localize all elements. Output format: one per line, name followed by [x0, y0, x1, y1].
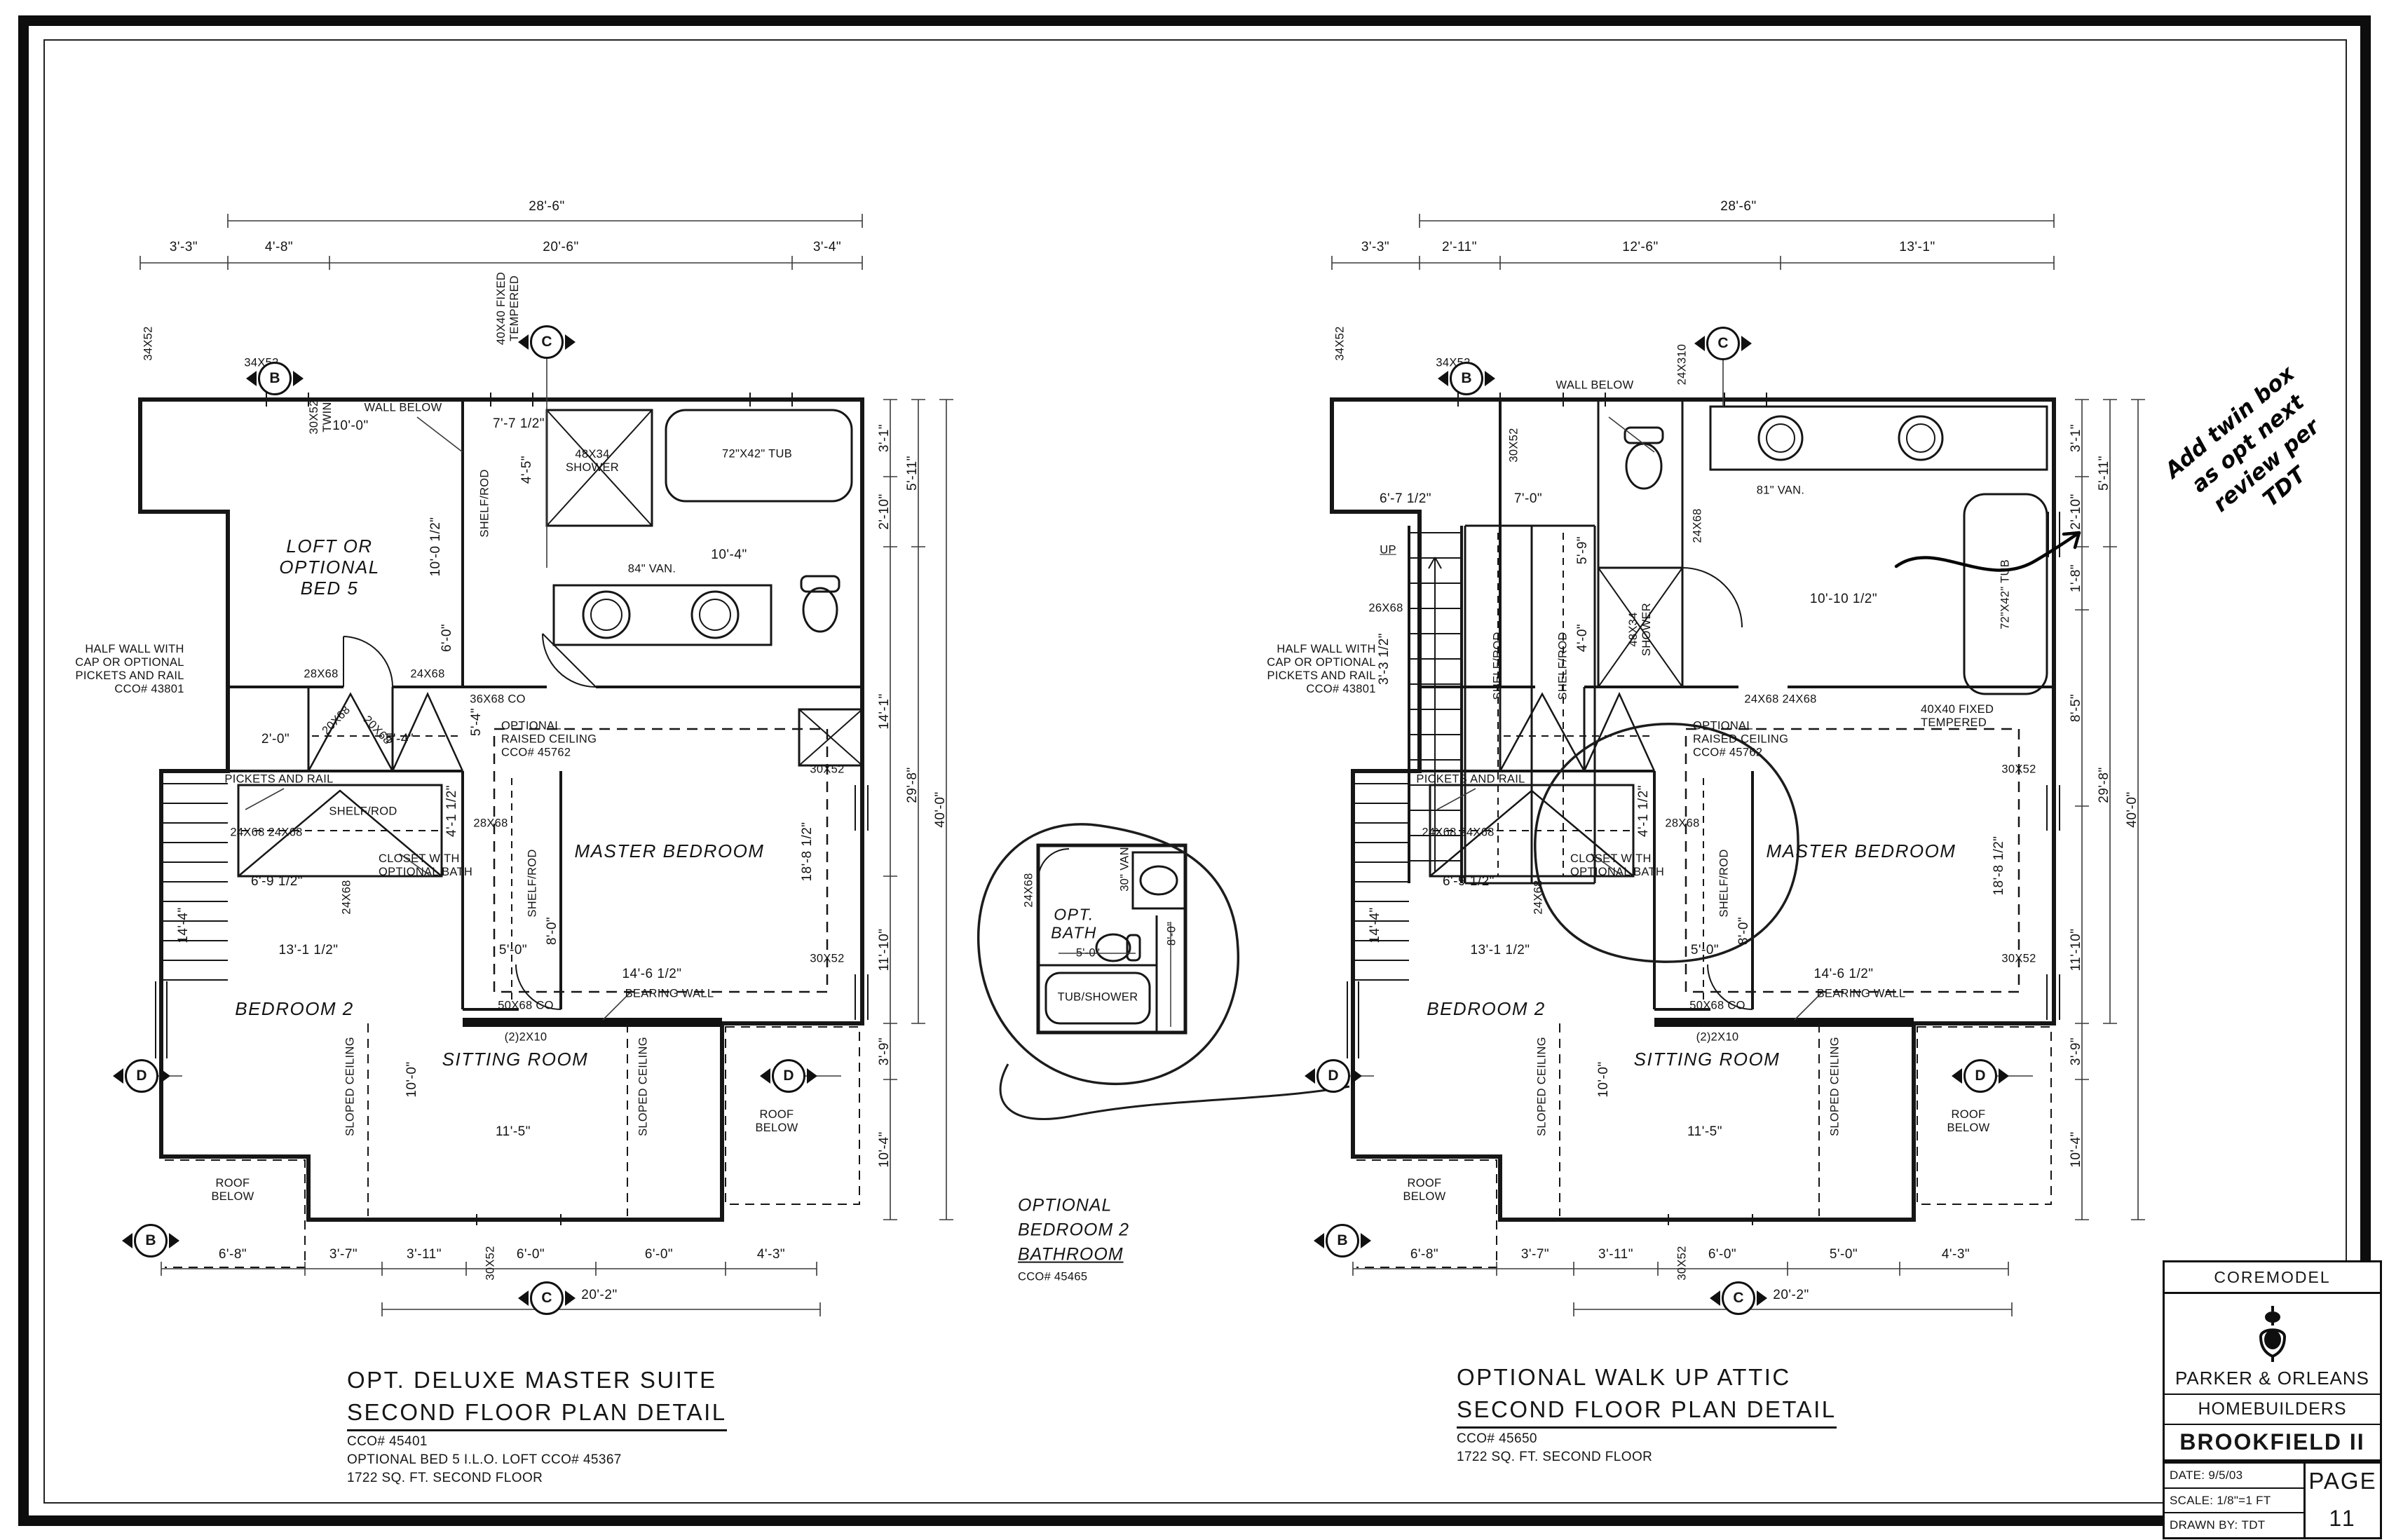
date-row: DATE: 9/5/03: [2165, 1464, 2303, 1487]
dim-label: 4'-1 1/2": [444, 785, 460, 837]
right-plan-caption: OPTIONAL WALK UP ATTIC SECOND FLOOR PLAN…: [1457, 1364, 1837, 1465]
section-marker-d-right: D: [1963, 1059, 1997, 1093]
left-floor-plan: B C D D B C 28'-6" 3'-3" 4'-8" 20'-6" 3'…: [98, 175, 988, 1318]
dim-label: 5'-9": [1575, 536, 1591, 564]
window-label: 30X52: [2001, 763, 2036, 777]
page-label: PAGE: [2308, 1468, 2376, 1494]
window-label: 30X52: [2001, 953, 2036, 966]
dim-label: 6'-8": [219, 1247, 247, 1262]
half-wall-note: HALF WALL WITH CAP OR OPTIONAL PICKETS A…: [1267, 643, 1375, 696]
shelf-rod-label: SHELF/ROD: [479, 469, 492, 537]
dim-label: 10'-4": [711, 547, 747, 563]
marker-letter: D: [783, 1068, 794, 1084]
section-marker-c-bottom: C: [530, 1281, 564, 1315]
marker-letter: B: [269, 370, 280, 387]
door-label: 24X68 24X68: [1744, 693, 1816, 707]
plan-subtitle: SECOND FLOOR PLAN DETAIL: [1457, 1396, 1837, 1429]
dim-label: 4'-8": [265, 240, 293, 255]
door-knocker-logo: [2254, 1304, 2292, 1363]
room-label-bedroom-2: BEDROOM 2: [1427, 999, 1546, 1020]
dim-label: 4'-0": [1575, 624, 1591, 652]
door-label: 28X68: [1665, 817, 1699, 831]
cased-opening-label: 36X68 CO: [470, 693, 525, 707]
dim-label: 3'-3": [1361, 240, 1389, 255]
dim-label: 3'-11": [1598, 1247, 1633, 1262]
title-block: COREMODEL PARKER & ORLEANS HOMEBUILDERS …: [2163, 1260, 2382, 1539]
dim-label: 14'-1": [877, 693, 892, 729]
dim-label: 18'-8 1/2": [800, 822, 815, 881]
section-marker-c: C: [530, 325, 564, 359]
marker-letter: B: [1337, 1232, 1347, 1249]
dim-label: 3'-3": [170, 240, 198, 255]
window-label: 30X52: [1676, 1246, 1689, 1280]
plan-note: 1722 SQ. FT. SECOND FLOOR: [347, 1471, 727, 1486]
dim-label: 6'-0": [645, 1247, 673, 1262]
dim-label: 10'-4": [877, 1131, 892, 1167]
dim-label: 5'-4": [469, 708, 484, 736]
dim-label: 10'-10 1/2": [1810, 592, 1877, 607]
dim-label: 1'-8": [2069, 564, 2084, 592]
drawn-by-value: TDT: [2242, 1518, 2266, 1532]
dim-label: 12'-6": [1622, 240, 1658, 255]
window-label: 30X52: [810, 763, 844, 777]
dim-label: 6'-9 1/2": [251, 874, 303, 890]
dim-label: 14'-4": [176, 907, 191, 943]
dim-label: 8'-5": [2069, 694, 2084, 722]
marker-letter: C: [1733, 1290, 1743, 1307]
dim-label: 10'-0": [1596, 1061, 1612, 1097]
model-name: COREMODEL: [2165, 1262, 2380, 1294]
door-label: 24X68 24X68: [230, 826, 302, 840]
drawn-by-row: DRAWN BY: TDT: [2165, 1512, 2303, 1537]
plan-subtitle: SECOND FLOOR PLAN DETAIL: [347, 1399, 727, 1431]
dim-label: 2'-10": [2069, 493, 2084, 529]
bearing-wall-note: BEARING WALL: [625, 988, 714, 1001]
dim-label: 20'-6": [543, 240, 578, 255]
plan-note: CCO# 45401: [347, 1434, 727, 1450]
half-wall-note: HALF WALL WITH CAP OR OPTIONAL PICKETS A…: [75, 643, 184, 696]
dim-label: 28'-6": [1720, 199, 1756, 214]
company-type: HOMEBUILDERS: [2165, 1395, 2380, 1424]
tub-shower-label: TUB/SHOWER: [1058, 991, 1138, 1004]
dim-label: 3'-3 1/2": [1377, 633, 1392, 685]
dim-label: 6'-8": [1410, 1247, 1438, 1262]
wall-below-note: WALL BELOW: [365, 402, 442, 415]
marker-letter: D: [1328, 1068, 1338, 1084]
scale-value: 1/8"=1 FT: [2217, 1494, 2271, 1508]
closet-note: CLOSET WITH OPTIONAL BATH: [379, 852, 472, 879]
door-label: 24X68 24X68: [1422, 826, 1494, 840]
dim-label: 11'-10": [877, 928, 892, 971]
date-label: DATE:: [2170, 1469, 2205, 1483]
dim-label: 6'-0": [440, 624, 455, 652]
shelf-rod-label: SHELF/ROD: [1718, 849, 1731, 917]
dim-label: 13'-1 1/2": [278, 943, 338, 958]
marker-letter: C: [541, 1290, 552, 1307]
section-marker-d-right: D: [772, 1059, 805, 1093]
dim-label: 4'-5": [519, 456, 535, 484]
room-label-opt-bath: OPT. BATH: [1051, 906, 1097, 943]
dim-label: 3'-1": [877, 424, 892, 452]
dim-label: 11'-5": [496, 1124, 531, 1140]
dim-label: 2'-11": [1442, 240, 1477, 255]
sloped-ceiling-note: SLOPED CEILING: [637, 1037, 651, 1136]
dim-label: 40'-0": [2125, 791, 2140, 827]
sloped-ceiling-note: SLOPED CEILING: [1536, 1037, 1549, 1136]
window-label: 40X40 FIXED TEMPERED: [1921, 703, 1994, 730]
joist-label: (2)2X10: [1696, 1031, 1739, 1044]
dim-label: 11'-5": [1687, 1124, 1722, 1140]
marker-letter: B: [1461, 370, 1471, 387]
vanity-label: 81" VAN.: [1757, 484, 1804, 498]
dim-label: 2'-10": [877, 493, 892, 529]
dim-label: 5'-0": [1691, 943, 1719, 958]
room-label-loft: LOFT OR OPTIONAL BED 5: [279, 536, 379, 599]
drawn-by-label: DRAWN BY:: [2170, 1518, 2238, 1532]
dim-label: 3'-9": [877, 1037, 892, 1065]
pickets-note: PICKETS AND RAIL: [1416, 773, 1525, 786]
dim-label: 3'-11": [407, 1247, 442, 1262]
door-label: 24X68: [341, 880, 354, 914]
room-label-sitting-room: SITTING ROOM: [442, 1049, 589, 1070]
dim-label: 3'-4": [813, 240, 841, 255]
right-floor-plan: B C D D B C 28'-6" 3'-3" 2'-11" 12'-6" 1…: [1290, 175, 2180, 1318]
dim-label: 20'-2": [1773, 1288, 1809, 1303]
vanity-label: 84" VAN.: [628, 563, 676, 576]
plan-note: OPTIONAL BED 5 I.L.O. LOFT CCO# 45367: [347, 1452, 727, 1468]
detail-cco-number: CCO# 45465: [1018, 1271, 1087, 1284]
dim-label: 10'-0": [404, 1061, 420, 1097]
dim-label: 14'-6 1/2": [622, 967, 681, 982]
dim-label: 4'-1 1/2": [1636, 785, 1652, 837]
door-label: 24X68: [1692, 508, 1705, 543]
dim-label: 3'-7": [329, 1247, 358, 1262]
room-label-master-bedroom: MASTER BEDROOM: [575, 841, 765, 862]
roof-below-note: ROOF BELOW: [1947, 1108, 1989, 1135]
dim-label: 6'-0": [1708, 1247, 1736, 1262]
roof-below-note: ROOF BELOW: [755, 1108, 798, 1135]
section-marker-d-left: D: [1316, 1059, 1350, 1093]
cased-opening-label: 50X68 CO: [1689, 1000, 1745, 1013]
dim-label: 7'-7 1/2": [493, 416, 545, 432]
dim-label: 18'-8 1/2": [1992, 836, 2007, 895]
tub-label: 72"X42" TUB: [722, 448, 792, 461]
raised-ceiling-note: OPTIONAL RAISED CEILING CCO# 45762: [501, 720, 597, 760]
bearing-wall-note: BEARING WALL: [1817, 988, 1906, 1001]
marker-letter: B: [145, 1232, 156, 1249]
marker-letter: D: [1975, 1068, 1985, 1084]
dim-label: 28'-6": [529, 199, 564, 214]
detail-caption-line: BATHROOM: [1018, 1245, 1124, 1265]
scale-row: SCALE: 1/8"=1 FT: [2165, 1487, 2303, 1513]
dim-label: 10'-0 1/2": [428, 517, 444, 576]
marker-letter: D: [136, 1068, 147, 1084]
dim-label: 5'-0": [499, 943, 527, 958]
section-marker-b-bottom: B: [1326, 1224, 1359, 1258]
dim-label: 10'-0": [332, 418, 368, 434]
dim-label: 3'-9": [2069, 1037, 2084, 1065]
roof-below-note: ROOF BELOW: [1403, 1177, 1445, 1204]
door-label: 24X68: [1532, 880, 1546, 914]
plan-name: BROOKFIELD II: [2165, 1425, 2380, 1462]
section-marker-d-left: D: [125, 1059, 158, 1093]
dim-label: 6'-9 1/2": [1443, 874, 1495, 890]
closet-note: CLOSET WITH OPTIONAL BATH: [1570, 852, 1664, 879]
shelf-rod-label: SHELF/ROD: [1492, 632, 1505, 700]
wall-below-note: WALL BELOW: [1556, 379, 1634, 393]
dim-label: 20'-2": [581, 1288, 617, 1303]
window-label: 34X52: [1334, 326, 1347, 360]
pickets-note: PICKETS AND RAIL: [224, 773, 333, 786]
dim-label: 5'-11": [905, 456, 920, 491]
dim-label: 4'-3": [757, 1247, 785, 1262]
scale-label: SCALE:: [2170, 1494, 2213, 1508]
dim-label: 8'-0": [1736, 917, 1752, 945]
room-label-bedroom-2: BEDROOM 2: [235, 999, 354, 1020]
window-label: 24X310: [1676, 344, 1689, 386]
dim-label: 14'-4": [1368, 907, 1383, 943]
dim-label: 6'-0": [517, 1247, 545, 1262]
door-label: 26X68: [1368, 602, 1403, 615]
marker-letter: C: [1717, 335, 1728, 352]
sloped-ceiling-note: SLOPED CEILING: [1829, 1037, 1842, 1136]
detail-caption-line: BEDROOM 2: [1018, 1220, 1129, 1241]
dim-label: 8'-0": [545, 917, 560, 945]
dim-label: 5'-0": [1830, 1247, 1858, 1262]
dim-label: 14'-6 1/2": [1813, 967, 1873, 982]
joist-label: (2)2X10: [505, 1031, 547, 1044]
dim-label: 29'-8": [2097, 767, 2112, 803]
shelf-rod-label: SHELF/ROD: [1557, 632, 1570, 700]
door-label: 24X68: [1023, 873, 1036, 907]
room-label-master-bedroom: MASTER BEDROOM: [1767, 841, 1956, 862]
dim-label: 13'-1": [1899, 240, 1935, 255]
page-cell: PAGE 11: [2306, 1464, 2380, 1537]
dim-label: 13'-1 1/2": [1470, 943, 1530, 958]
section-marker-b: B: [258, 362, 292, 395]
stairs-up-label: UP: [1380, 544, 1396, 557]
door-label: 24X68: [410, 668, 444, 681]
dim-label: 40'-0": [933, 791, 948, 827]
shower-label: 48X34 SHOWER: [1627, 603, 1654, 656]
plan-title: OPT. DELUXE MASTER SUITE: [347, 1367, 727, 1394]
page-number: 11: [2329, 1506, 2356, 1532]
dim-label: 29'-8": [905, 767, 920, 803]
dim-label: 5'-11": [2097, 456, 2112, 491]
left-plan-caption: OPT. DELUXE MASTER SUITE SECOND FLOOR PL…: [347, 1367, 727, 1486]
window-label: 30X52: [484, 1246, 498, 1280]
raised-ceiling-note: OPTIONAL RAISED CEILING CCO# 45762: [1693, 720, 1788, 760]
plan-note: CCO# 45650: [1457, 1431, 1837, 1447]
door-label: 28X68: [473, 817, 508, 831]
window-label: 30X52 TWIN: [308, 400, 334, 434]
window-label: 30X52: [1508, 428, 1521, 462]
section-marker-b: B: [1450, 362, 1483, 395]
dim-label: 2'-0": [261, 732, 290, 747]
shelf-rod-label: SHELF/ROD: [526, 849, 540, 917]
shelf-rod-label: SHELF/ROD: [329, 805, 397, 819]
cased-opening-label: 50X68 CO: [498, 1000, 553, 1013]
room-label-sitting-room: SITTING ROOM: [1634, 1049, 1781, 1070]
optional-bathroom-detail: 24X68 30" VAN OPT. BATH 5'-0" 8'-0" TUB/…: [967, 785, 1360, 1402]
dim-label: 3'-1": [2069, 424, 2084, 452]
dim-label: 4'-3": [1942, 1247, 1970, 1262]
tub-label: 72"X42" TUB: [1999, 559, 2013, 629]
window-label: 30X52: [810, 953, 844, 966]
door-label: 28X68: [304, 668, 338, 681]
dim-label: 6'-7 1/2": [1380, 491, 1431, 507]
dim-label: 11'-10": [2069, 928, 2084, 971]
marker-letter: C: [541, 334, 552, 350]
dim-label: 5'-0": [1076, 947, 1100, 960]
section-marker-b-bottom: B: [134, 1224, 168, 1258]
window-label: 34X52: [142, 326, 156, 360]
dim-label: 10'-4": [2069, 1131, 2084, 1167]
plan-note: 1722 SQ. FT. SECOND FLOOR: [1457, 1450, 1837, 1465]
company-name: PARKER & ORLEANS: [2175, 1368, 2369, 1389]
roof-below-note: ROOF BELOW: [211, 1177, 254, 1204]
dim-label: 7'-0": [1514, 491, 1542, 507]
detail-caption-line: OPTIONAL: [1018, 1196, 1112, 1216]
dim-label: 3'-7": [1521, 1247, 1549, 1262]
sloped-ceiling-note: SLOPED CEILING: [344, 1037, 358, 1136]
dim-label: 8'-0": [1166, 922, 1179, 946]
shower-label: 48X34 SHOWER: [566, 448, 619, 475]
section-marker-c: C: [1706, 327, 1740, 360]
vanity-label: 30" VAN: [1119, 847, 1132, 892]
plan-title: OPTIONAL WALK UP ATTIC: [1457, 1364, 1837, 1391]
section-marker-c-bottom: C: [1722, 1281, 1755, 1315]
date-value: 9/5/03: [2208, 1469, 2242, 1483]
